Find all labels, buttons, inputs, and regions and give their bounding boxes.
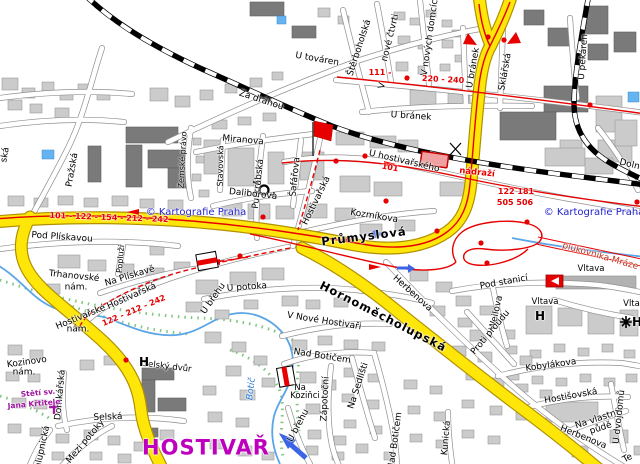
map-label-street: nové čtvrti [381,13,401,62]
map-label-street: Zápotoční [320,376,331,422]
map-label-street: Te [622,453,635,464]
map-label-street: Chalupnická [32,425,52,464]
map-label-street: U bránek [390,111,431,123]
map-label-route: 220 - 240 [422,75,465,85]
map-label-land: Vltava [532,298,559,307]
map-label-district: HOSTIVAŘ [142,438,270,459]
map-label-street: Miranova [222,135,264,148]
map-label-street: Pod Plískavou [31,231,93,244]
map-label-street: Hostivařská [301,175,332,226]
map-label-street: V [378,82,388,90]
map-label-street: U břehu [287,408,312,444]
map-label-route: 505 506 [497,199,533,207]
map-label-street: Dolno [618,158,640,173]
map-label-street: Herbenova [391,274,434,314]
map-label-street: Kobylákova [525,358,577,374]
map-label-street: Stavovská [217,145,226,186]
map-label-street: Purkrabská [252,159,266,210]
map-label-street: nám. [65,284,88,293]
street-labels-layer: Za dráhouU továrenMiranovaZemské právoSt… [0,0,640,464]
map-label-street: Hostišovská [544,388,599,406]
map-label-street: U potoka [227,282,268,294]
map-label-street: U hostivařského [368,149,440,174]
map-label-hotel: H [632,316,640,328]
map-label-hotel: H [139,356,149,368]
map-label-street: Nad Botičem [293,348,351,366]
map-label-street: Nad Botičem [388,412,405,464]
map-label-street: Popluží [116,245,126,274]
map-label-water: Botič [246,377,258,401]
map-label-street: ská [0,147,12,164]
map-label-street: Na Sedlišti [347,362,370,410]
map-label-street: U pekáren [578,34,590,81]
map-label-street: U břehu [200,282,228,316]
map-label-major: Průmyslová [321,226,407,248]
map-label-street: Domkářská [54,369,67,420]
map-label-land: Vltav [623,300,640,309]
map-label-street: Za dráhou [238,90,285,113]
map-label-route: nádraží [459,167,495,179]
map-label-copy: © Kartografie Praha [146,208,247,218]
map-label-hotel: H [535,310,545,322]
map-label-land: Koziňci [290,392,320,401]
map-label-street: Zemské právo [178,131,189,188]
map-label-land: Vltava [578,265,605,274]
map-label-street: Sklářská [498,53,513,92]
map-label-street: Kunická [441,420,453,456]
map-label-church: Stětí sv. [21,388,56,398]
map-label-copy: © Kartografie Praha [544,208,640,218]
map-label-street: U továren [295,52,340,69]
map-label-church: Jana Křtitele [7,398,60,410]
map-label-street: V Nové Hostivaři [286,312,361,333]
map-label-street: Pod stanicí [479,274,528,291]
map-label-route: 101 [381,163,399,174]
map-label-street: Kozmíkova [349,209,398,225]
map-label-street: Šafářova [289,157,302,197]
map-label-street: U dvojdomů [613,390,628,445]
map-label-major: Hornoměcholupská [318,280,448,354]
map-label-street: U bránek [466,47,482,89]
map-label-route: 122 181 [498,188,534,196]
map-label-street: Pražská [66,152,81,188]
map-viewport[interactable]: Za dráhouU továrenMiranovaZemské právoSt… [0,0,640,464]
map-label-route: 111 - [369,69,392,77]
map-label-street: nám. [13,369,36,378]
map-label-street: Mezi potoky [65,418,107,464]
map-label-street: nám. [67,326,90,335]
map-label-street: V nových domcích [421,0,441,76]
map-label-land: Selský dvůr [142,360,192,374]
